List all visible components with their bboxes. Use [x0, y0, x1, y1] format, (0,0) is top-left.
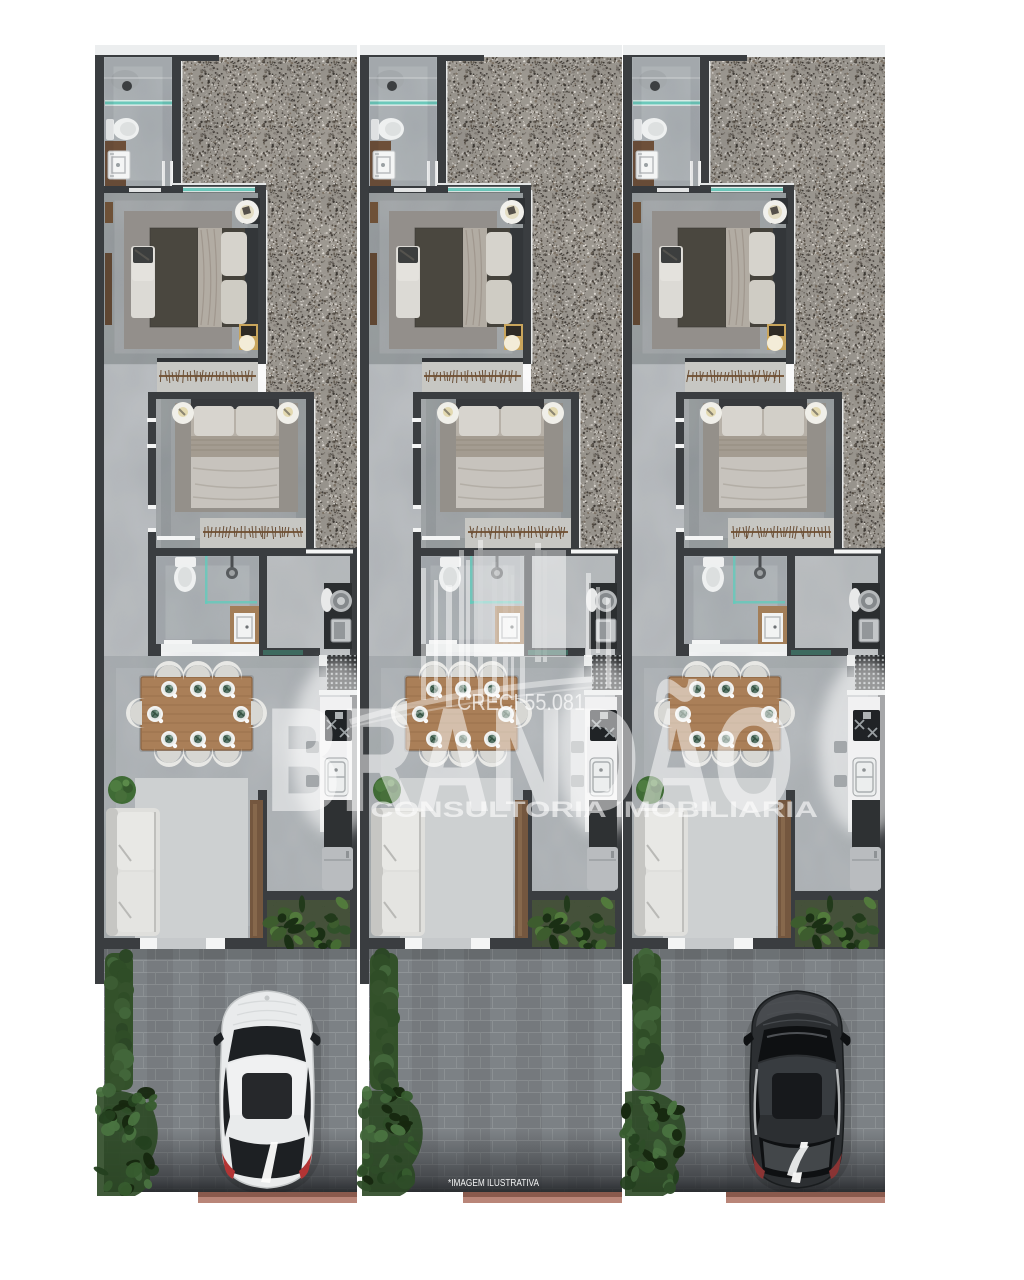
- svg-text:CONSULTORIA IMOBILIARIA: CONSULTORIA IMOBILIARIA: [370, 797, 818, 822]
- svg-text:*IMAGEM ILUSTRATIVA: *IMAGEM ILUSTRATIVA: [448, 1177, 539, 1189]
